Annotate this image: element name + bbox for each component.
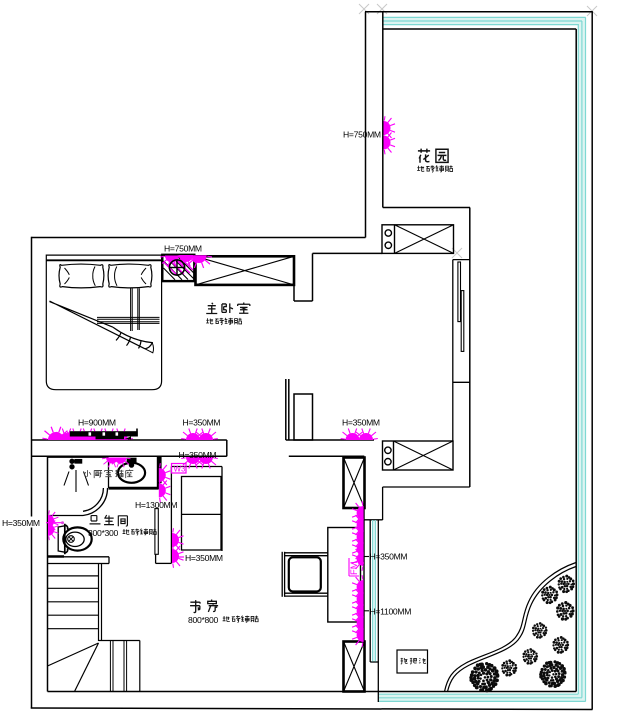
- svg-text:H=750MM: H=750MM: [164, 244, 202, 254]
- svg-text:FM: FM: [349, 561, 360, 575]
- svg-text:H=350MM: H=350MM: [185, 553, 223, 563]
- svg-text:H=350MM: H=350MM: [183, 418, 221, 428]
- svg-text:H=350MM: H=350MM: [370, 552, 408, 562]
- svg-text:W3: W3: [174, 465, 187, 474]
- svg-text:H=1300MM: H=1300MM: [135, 500, 177, 510]
- svg-text:800*800: 800*800: [188, 615, 218, 625]
- svg-text:H=350MM: H=350MM: [342, 418, 380, 428]
- svg-text:300*300: 300*300: [88, 528, 118, 538]
- svg-text:H=750MM: H=750MM: [343, 130, 381, 140]
- svg-text:H=350MM: H=350MM: [2, 518, 40, 528]
- svg-text:H=900MM: H=900MM: [78, 418, 116, 428]
- svg-text:H=1100MM: H=1100MM: [370, 607, 412, 617]
- svg-text:H=350MM: H=350MM: [179, 450, 217, 460]
